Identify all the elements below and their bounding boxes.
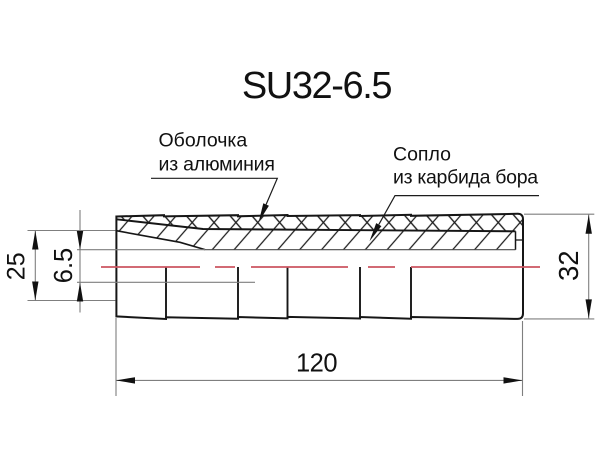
svg-text:6.5: 6.5	[50, 248, 78, 283]
svg-text:Сопло: Сопло	[393, 144, 451, 166]
svg-text:SU32-6.5: SU32-6.5	[242, 65, 392, 107]
svg-text:из карбида бора: из карбида бора	[393, 167, 538, 189]
svg-text:Оболочка: Оболочка	[159, 129, 248, 151]
svg-text:25: 25	[3, 252, 31, 280]
svg-text:32: 32	[553, 250, 584, 281]
svg-text:120: 120	[296, 350, 337, 378]
svg-text:из алюминия: из алюминия	[159, 153, 275, 175]
